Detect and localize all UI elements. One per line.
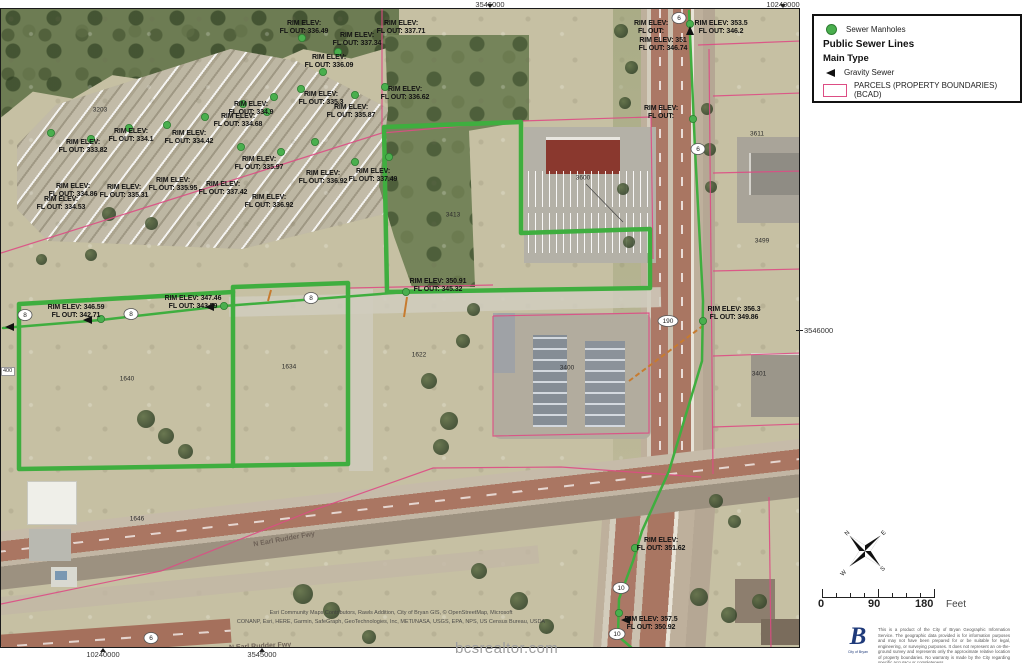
route-shield: 10 <box>609 629 625 640</box>
elevation-label-line: FL OUT: 336.92 <box>245 202 294 210</box>
elevation-label-line: FL OUT: 335.97 <box>235 164 284 172</box>
gravity-arrow-icon <box>826 69 835 77</box>
elevation-label-line: RIM ELEV: <box>37 196 86 204</box>
elevation-label: RIM ELEV:FL OUT: 333.82 <box>59 139 108 155</box>
city-logo-letter: B <box>843 624 873 649</box>
parcel-number: 3203 <box>93 107 107 114</box>
elevation-label: RIM ELEV:FL OUT: 334.42 <box>165 130 214 146</box>
sewer-manhole <box>402 288 409 295</box>
route-shield-text: 6 <box>677 15 681 22</box>
sewer-manhole <box>237 143 244 150</box>
elevation-label-line: FL OUT: 334.42 <box>165 138 214 146</box>
elevation-label-line: RIM ELEV: <box>327 104 376 112</box>
elevation-label-line: FL OUT: 337.34 <box>333 40 382 48</box>
elevation-label: RIM ELEV:FL OUT: 335.95 <box>149 177 198 193</box>
elevation-label: RIM ELEV:FL OUT: 336.92 <box>299 170 348 186</box>
elevation-label-line: FL OUT: 336.92 <box>299 178 348 186</box>
elevation-label-line: RIM ELEV: <box>165 130 214 138</box>
elevation-label-line: RIM ELEV: <box>235 156 284 164</box>
parcel-boundary-line <box>713 171 800 173</box>
elevation-label: RIM ELEV: 356.3FL OUT: 349.86 <box>708 306 761 322</box>
elevation-label-line: FL OUT: <box>634 28 668 36</box>
elevation-label-line: RIM ELEV: <box>149 177 198 185</box>
elevation-label-line: RIM ELEV: <box>644 105 678 113</box>
website-watermark: bcsrealtor.com <box>455 640 558 657</box>
elevation-label-line: FL OUT: 350.92 <box>625 624 678 632</box>
scale-end: 180 <box>915 598 933 610</box>
elevation-label-line: FL OUT: 337.42 <box>199 189 248 197</box>
sewer-lateral-tick <box>404 297 407 317</box>
sewer-lateral-tick <box>268 290 271 301</box>
elevation-label-line: RIM ELEV: <box>199 181 248 189</box>
parcel-number: 3413 <box>446 212 460 219</box>
grid-tick <box>780 4 786 8</box>
scale-start: 0 <box>818 598 824 610</box>
elevation-label-line: FL OUT: 334.1 <box>109 136 154 144</box>
route-shield: 8 <box>304 293 318 304</box>
sewer-line <box>384 122 650 292</box>
sewer-manhole <box>699 317 706 324</box>
sewer-manhole <box>615 609 622 616</box>
elevation-label: RIM ELEV: 347.46FL OUT: 343.59 <box>165 295 222 311</box>
map-canvas: 8886619010106 RIM ELEV:FL OUT: 336.49RIM… <box>0 8 800 648</box>
legend-item: Sewer Manholes <box>823 24 1011 35</box>
elevation-label: RIM ELEV:FL OUT: 336.49 <box>280 20 329 36</box>
scale-tick <box>878 589 879 598</box>
elevation-label: RIM ELEV:FL OUT: 334.53 <box>37 196 86 212</box>
sewer-manhole <box>270 93 277 100</box>
parcel-swatch-icon <box>823 84 847 97</box>
elevation-label: RIM ELEV:FL OUT: 337.34 <box>333 32 382 48</box>
elevation-label-line: FL OUT: 335.87 <box>327 112 376 120</box>
parcel-number: 1646 <box>130 516 144 523</box>
grid-label-right: 3546000 <box>804 326 833 335</box>
route-shield: 6 <box>672 13 686 24</box>
route-shield-text: 8 <box>23 312 27 319</box>
elevation-label-line: RIM ELEV: <box>214 113 263 121</box>
elevation-label: RIM ELEV:FL OUT: 337.42 <box>199 181 248 197</box>
scale-unit: Feet <box>946 599 966 610</box>
elevation-label-line: FL OUT: 346.74 <box>639 45 688 53</box>
elevation-label-line: FL OUT: 336.09 <box>305 62 354 70</box>
parcel-number: 3400 <box>560 365 574 372</box>
legend-item: Gravity Sewer <box>823 68 1011 77</box>
elevation-label: RIM ELEV:FL OUT: 334.68 <box>214 113 263 129</box>
route-shield: 6 <box>144 633 158 644</box>
legend-item-label: Gravity Sewer <box>844 68 894 77</box>
sewer-manhole <box>351 158 358 165</box>
attribution-line: Esri Community Maps Contributors, Rawls … <box>181 609 601 618</box>
sewer-manhole <box>277 148 284 155</box>
route-shield-text: 6 <box>696 146 700 153</box>
elevation-label-line: FL OUT: <box>644 113 678 121</box>
elevation-label: RIM ELEV:FL OUT: 336.62 <box>381 86 430 102</box>
compass-e: E <box>881 530 888 537</box>
legend-item: PARCELS (PROPERTY BOUNDARIES) (BCAD) <box>823 81 1011 99</box>
manhole-dot-icon <box>826 24 837 35</box>
route-shield: 10 <box>613 583 629 594</box>
elevation-label-line: FL OUT: 342.71 <box>48 312 105 320</box>
elevation-label-line: FL OUT: 333.82 <box>59 147 108 155</box>
elevation-label: RIM ELEV:FL OUT: 335.97 <box>235 156 284 172</box>
elevation-label-line: RIM ELEV: <box>100 184 149 192</box>
parcel-boundary-line <box>709 49 713 474</box>
elevation-label-line: FL OUT: 334.53 <box>37 204 86 212</box>
parcel-boundary-line <box>698 41 800 45</box>
grid-tick <box>100 648 106 652</box>
elevation-label: RIM ELEV: 357.5FL OUT: 350.92 <box>625 616 678 632</box>
sewer-manhole <box>220 302 227 309</box>
compass-rose: N E S W <box>838 524 892 583</box>
legend-item-label: Sewer Manholes <box>846 25 906 34</box>
elevation-label-line: FL OUT: 351.62 <box>637 545 686 553</box>
grid-label-left: 400 <box>1 367 15 376</box>
elevation-label-line: FL OUT: 336.62 <box>381 94 430 102</box>
gravity-flow-arrow-icon <box>686 26 694 35</box>
elevation-label-line: RIM ELEV: <box>381 86 430 94</box>
scale-tick <box>822 589 823 598</box>
scale-bar-line <box>822 584 934 598</box>
elevation-label-line: RIM ELEV: <box>299 170 348 178</box>
legend-heading: Public Sewer Lines <box>823 39 1011 50</box>
attribution-line: CONANP, Esri, HERE, Garmin, SafeGraph, G… <box>181 618 601 627</box>
elevation-label-line: RIM ELEV: <box>229 101 274 109</box>
parcel-number: 3611 <box>750 131 764 138</box>
route-shield-text: 8 <box>129 311 133 318</box>
elevation-label-line: RIM ELEV: <box>377 20 426 28</box>
elevation-label-line: FL OUT: 335.31 <box>100 192 149 200</box>
map-disclaimer: This is a product of the City of Bryan G… <box>878 627 1010 663</box>
elevation-label: RIM ELEV: 346.59FL OUT: 342.71 <box>48 304 105 320</box>
city-logo-caption: City of Bryan <box>843 650 873 654</box>
parcel-number: 1634 <box>282 364 296 371</box>
elevation-label-line: RIM ELEV: 356.3 <box>708 306 761 314</box>
compass-s: S <box>880 566 887 573</box>
route-shield: 8 <box>18 310 32 321</box>
elevation-label-line: RIM ELEV: <box>637 537 686 545</box>
compass-w: W <box>840 569 848 577</box>
map-attribution: Esri Community Maps Contributors, Rawls … <box>181 609 601 628</box>
sewer-manhole <box>47 129 54 136</box>
scale-bar: 0 90 180 Feet <box>818 584 968 612</box>
parcel-number: 1640 <box>120 376 134 383</box>
sewer-manhole <box>201 113 208 120</box>
route-shield-text: 10 <box>617 585 625 592</box>
elevation-label-line: RIM ELEV: <box>349 168 398 176</box>
grid-tick <box>487 4 493 8</box>
route-shield: 6 <box>691 144 705 155</box>
elevation-label: RIM ELEV: 350.91FL OUT: 345.32 <box>410 278 467 294</box>
elevation-label: RIM ELEV:FL OUT: 337.71 <box>377 20 426 36</box>
route-shield-text: 190 <box>663 318 674 325</box>
elevation-label-line: FL OUT: 346.2 <box>695 28 748 36</box>
legend-item-label: PARCELS (PROPERTY BOUNDARIES) (BCAD) <box>854 81 1011 99</box>
parcel-number: 3600 <box>576 175 590 182</box>
elevation-label: RIM ELEV:FL OUT: 335.87 <box>327 104 376 120</box>
elevation-label-line: RIM ELEV: 353.5 <box>695 20 748 28</box>
elevation-label-line: FL OUT: 343.59 <box>165 303 222 311</box>
elevation-label: RIM ELEV:FL OUT: 335.31 <box>100 184 149 200</box>
elevation-label-line: RIM ELEV: 346.59 <box>48 304 105 312</box>
elevation-label-line: RIM ELEV: <box>49 183 98 191</box>
parcel-boundary-line <box>1 467 701 604</box>
sewer-manhole <box>311 138 318 145</box>
elevation-label: RIM ELEV: 351FL OUT: 346.74 <box>639 37 688 53</box>
elevation-label-line: FL OUT: 337.49 <box>349 176 398 184</box>
scale-tick <box>934 589 935 598</box>
elevation-label: RIM ELEV:FL OUT: 337.49 <box>349 168 398 184</box>
route-shield-text: 10 <box>613 631 621 638</box>
sewer-manhole <box>385 153 392 160</box>
elevation-label-line: RIM ELEV: 350.91 <box>410 278 467 286</box>
route-shield: 8 <box>124 309 138 320</box>
elevation-label-line: RIM ELEV: <box>245 194 294 202</box>
route-shield-text: 8 <box>309 295 313 302</box>
elevation-label-line: FL OUT: 349.86 <box>708 314 761 322</box>
sewer-manhole <box>689 115 696 122</box>
parcel-boundary-line <box>713 353 800 356</box>
elevation-label-line: RIM ELEV: <box>634 20 668 28</box>
elevation-label-line: RIM ELEV: 351 <box>639 37 688 45</box>
parcel-boundary-line <box>713 424 800 427</box>
sewer-lateral-dashed <box>629 325 704 381</box>
route-shield: 190 <box>658 316 678 327</box>
elevation-label-line: FL OUT: 336.49 <box>280 28 329 36</box>
elevation-label: RIM ELEV:FL OUT: <box>644 105 678 121</box>
elevation-label-line: RIM ELEV: 357.5 <box>625 616 678 624</box>
elevation-label: RIM ELEV:FL OUT: 351.62 <box>637 537 686 553</box>
elevation-label-line: FL OUT: 335.95 <box>149 185 198 193</box>
elevation-label-line: RIM ELEV: <box>109 128 154 136</box>
parcel-number: 1622 <box>412 352 426 359</box>
elevation-label-line: RIM ELEV: <box>333 32 382 40</box>
grid-tick <box>259 648 265 652</box>
route-shield-text: 6 <box>149 635 153 642</box>
elevation-label: RIM ELEV:FL OUT: 336.92 <box>245 194 294 210</box>
elevation-label-line: RIM ELEV: 347.46 <box>165 295 222 303</box>
legend-heading: Main Type <box>823 53 1011 64</box>
elevation-label: RIM ELEV: 353.5FL OUT: 346.2 <box>695 20 748 36</box>
gravity-flow-arrow-icon <box>5 323 14 331</box>
elevation-label: RIM ELEV:FL OUT: 336.09 <box>305 54 354 70</box>
elevation-label-line: FL OUT: 345.32 <box>410 286 467 294</box>
elevation-label-line: FL OUT: 334.68 <box>214 121 263 129</box>
legend: Sewer ManholesPublic Sewer LinesMain Typ… <box>812 14 1022 103</box>
parcel-boundary-line <box>493 313 649 436</box>
elevation-label-line: RIM ELEV: <box>299 91 344 99</box>
map-export-page: 8886619010106 RIM ELEV:FL OUT: 336.49RIM… <box>0 0 1024 663</box>
scale-middle: 90 <box>868 598 880 610</box>
sewer-manhole <box>351 91 358 98</box>
elevation-label-line: RIM ELEV: <box>280 20 329 28</box>
parcel-boundary-line <box>769 497 771 648</box>
elevation-label-line: FL OUT: 337.71 <box>377 28 426 36</box>
elevation-label-line: RIM ELEV: <box>59 139 108 147</box>
grid-tick <box>796 330 803 331</box>
label-leader-line <box>586 184 623 222</box>
city-logo: B City of Bryan <box>843 624 873 654</box>
parcel-boundary-line <box>713 93 800 96</box>
elevation-label: RIM ELEV:FL OUT: <box>634 20 668 36</box>
elevation-label-line: RIM ELEV: <box>305 54 354 62</box>
parcel-number: 3401 <box>752 371 766 378</box>
parcel-boundary-line <box>713 269 800 271</box>
sewer-manhole <box>163 121 170 128</box>
elevation-label: RIM ELEV:FL OUT: 334.1 <box>109 128 154 144</box>
parcel-number: 3499 <box>755 238 769 245</box>
